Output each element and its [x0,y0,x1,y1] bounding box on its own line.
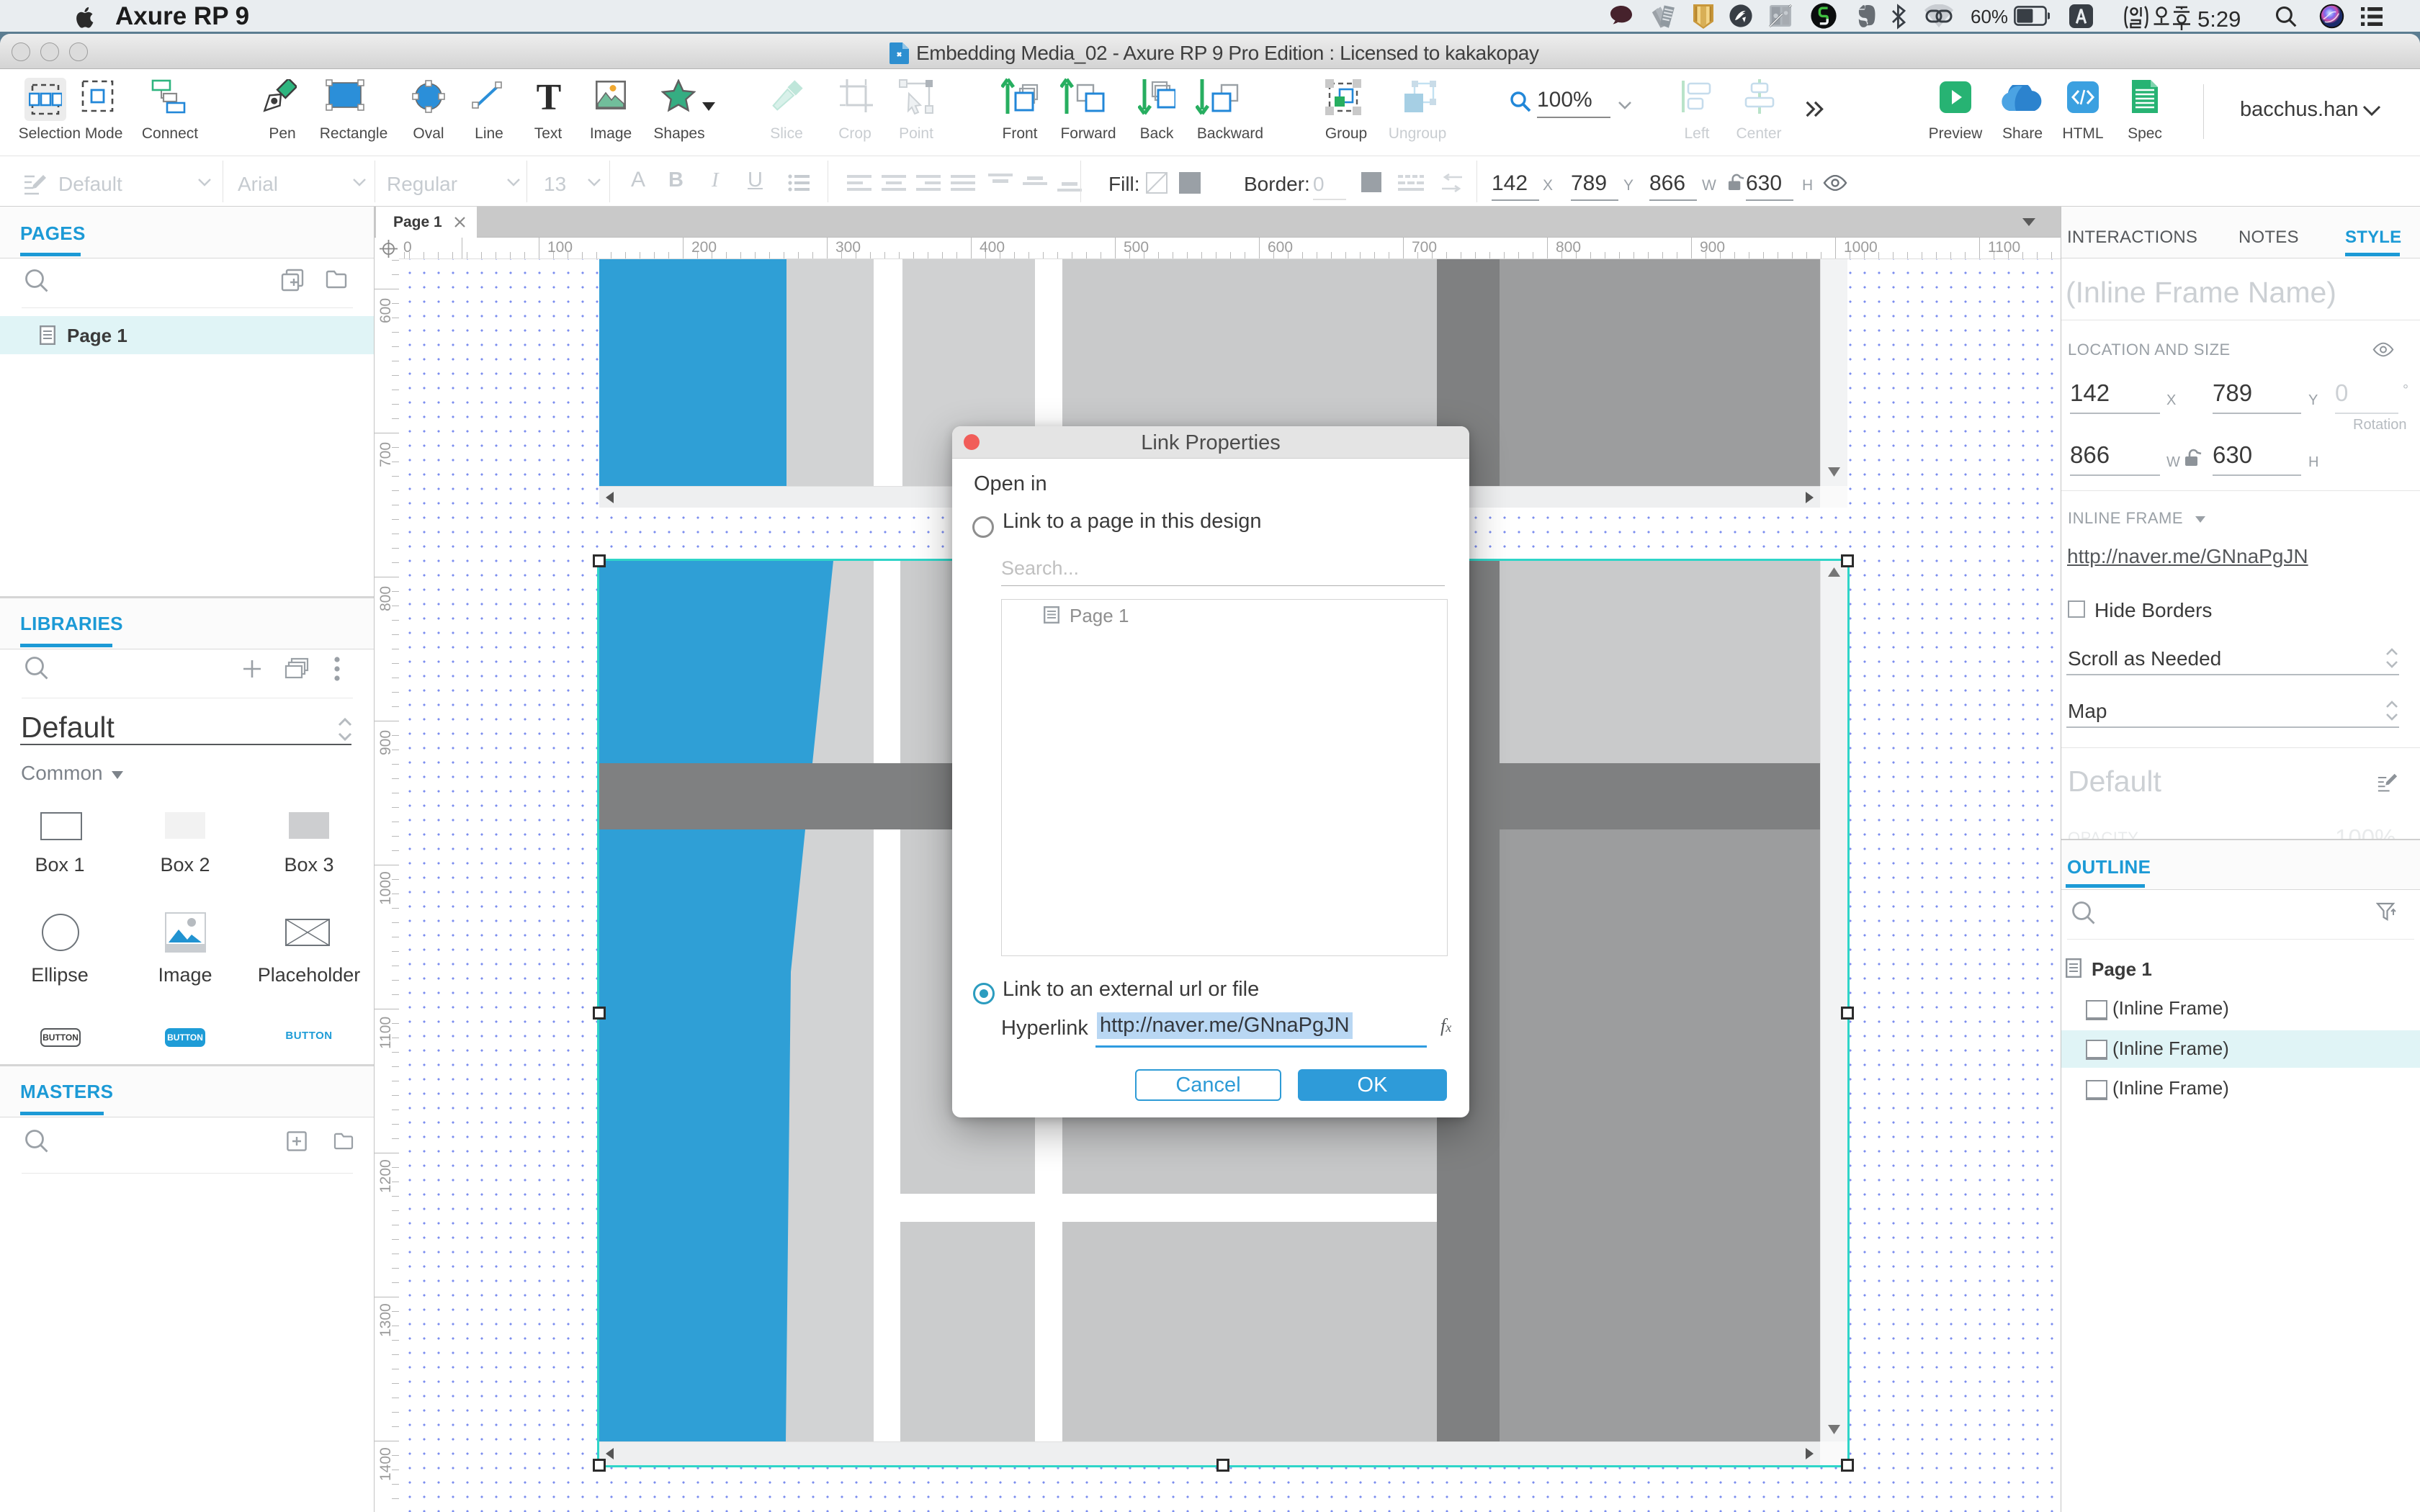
svg-text:5:29: 5:29 [2197,6,2241,30]
